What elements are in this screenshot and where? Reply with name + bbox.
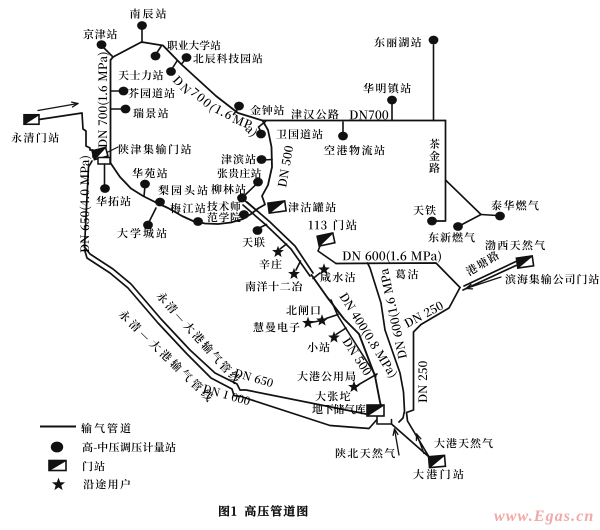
svg-text:www.Egas.cn: www.Egas.cn — [494, 508, 594, 525]
